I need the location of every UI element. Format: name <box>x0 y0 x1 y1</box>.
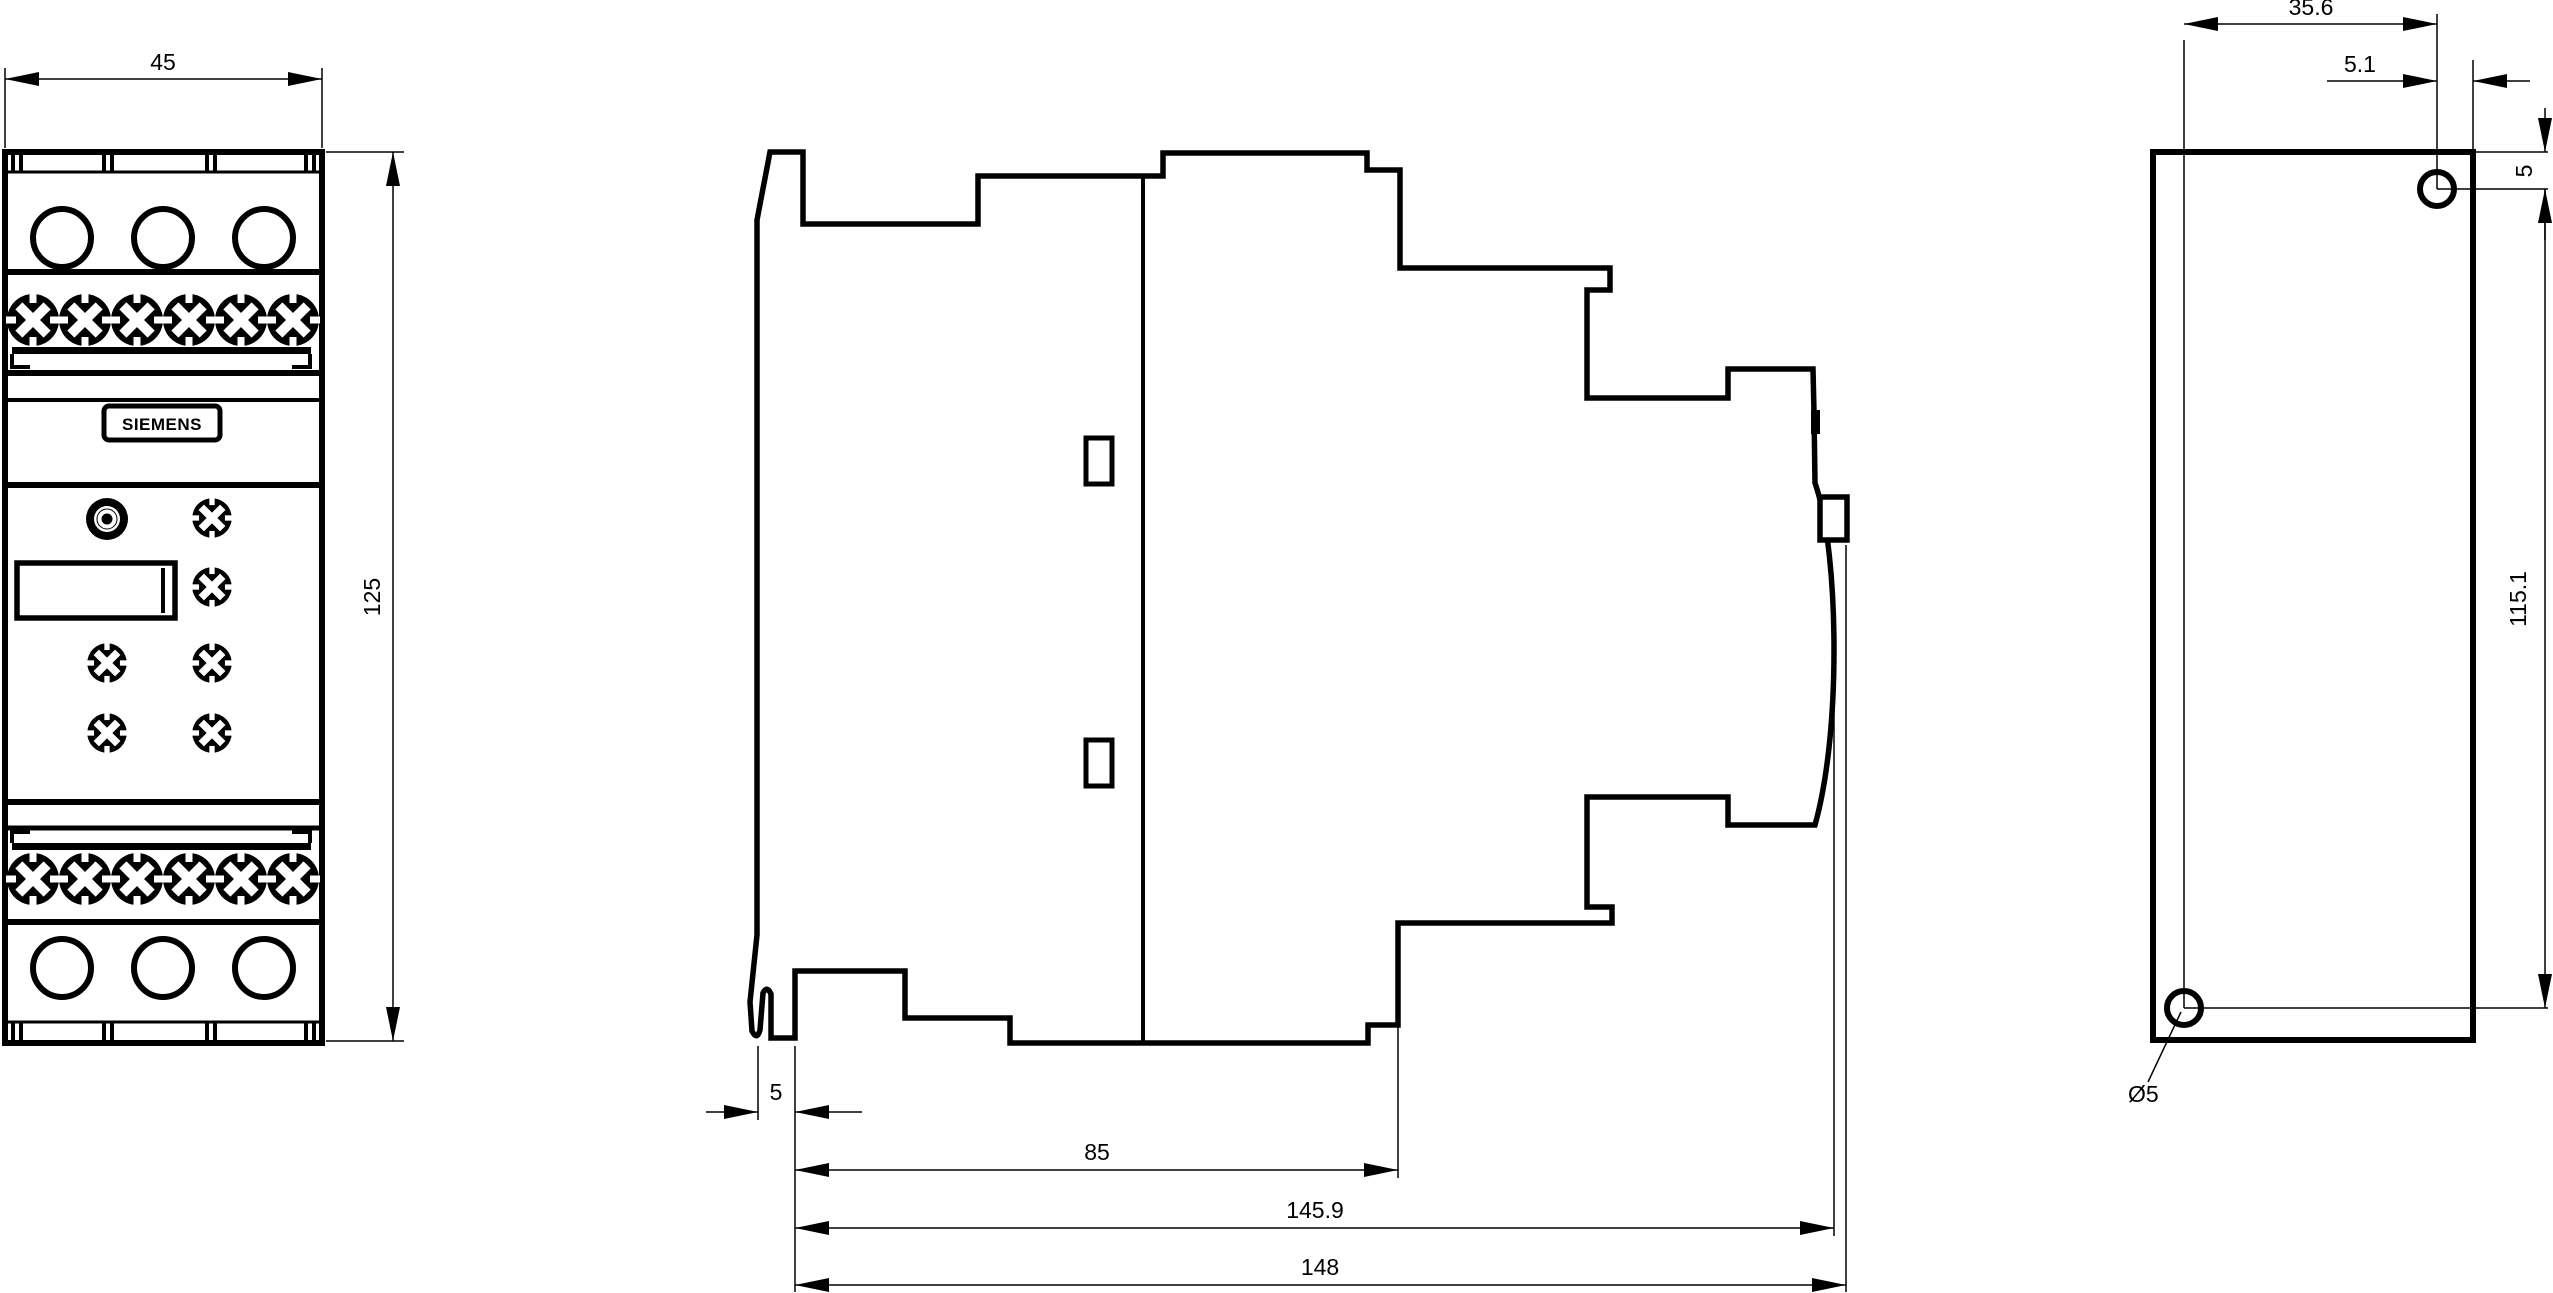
dimension-drawing-page: SIEMENS <box>0 0 2553 1293</box>
side-edge-clip <box>1811 410 1820 434</box>
brand-label: SIEMENS <box>104 406 220 440</box>
brand-label-text: SIEMENS <box>122 415 202 434</box>
dimension-rear-5-1: 5.1 <box>2327 51 2530 88</box>
drawing-canvas: SIEMENS <box>0 0 2553 1293</box>
dim-text-35-6: 35.6 <box>2289 0 2334 20</box>
dim-text-115-1: 115.1 <box>2505 571 2531 627</box>
dim-text-145-9: 145.9 <box>1286 1197 1344 1223</box>
front-view: SIEMENS <box>5 152 322 1043</box>
dimension-side-plate: 5 <box>706 1046 862 1292</box>
dim-text-85: 85 <box>1084 1139 1110 1165</box>
rear-panel-outline <box>2153 152 2473 1040</box>
dim-text-148: 148 <box>1301 1254 1339 1280</box>
side-profile-outline <box>750 152 1834 1043</box>
dim-text-5-plate: 5 <box>770 1079 783 1105</box>
dim-text-dia-5: Ø5 <box>2128 1081 2159 1107</box>
dim-text-5-1: 5.1 <box>2344 51 2376 77</box>
side-vent-slot-lower <box>1086 740 1112 786</box>
dim-text-5-top: 5 <box>2511 165 2537 178</box>
side-vent-slot-upper <box>1086 438 1112 484</box>
rear-panel-view <box>2153 14 2548 1040</box>
dimension-front-width: 45 <box>5 49 322 148</box>
side-latch <box>1820 497 1847 540</box>
dimension-front-height: 125 <box>326 152 404 1041</box>
dim-text-125: 125 <box>359 578 385 616</box>
adjustment-knob <box>86 498 128 540</box>
dimension-rear-5: 5 <box>2511 108 2552 240</box>
dimension-rear-115-1: 115.1 <box>2505 189 2552 1008</box>
display-window <box>17 563 175 618</box>
dim-text-45: 45 <box>150 49 176 75</box>
side-view <box>750 152 1847 1043</box>
dimension-rear-35-6: 35.6 <box>2184 0 2437 31</box>
